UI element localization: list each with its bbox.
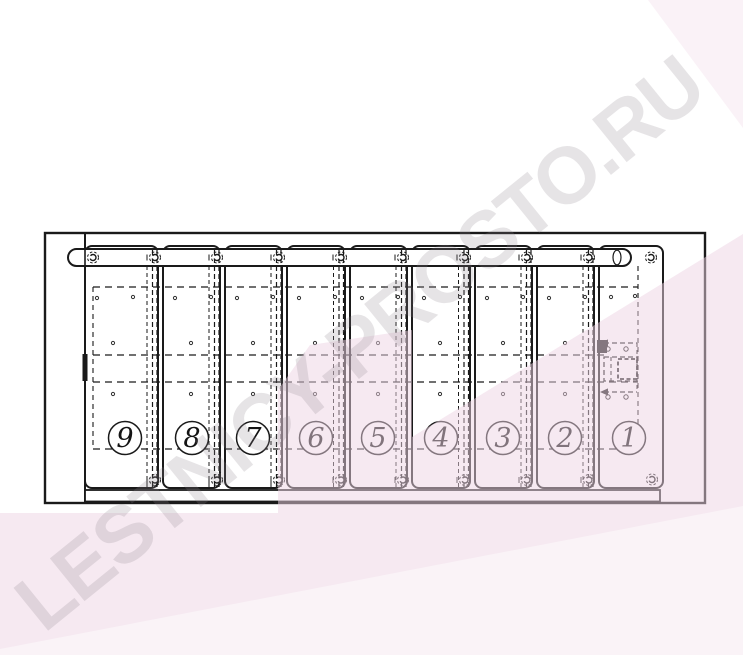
drawing-canvas: 987654321 LESTNICY-PROSTO.RU [0,0,743,655]
position-number: 9 [116,423,133,454]
rivet-inner-circle [152,255,158,261]
rivet-inner-circle [648,255,654,261]
rivet-inner-circle [276,255,282,261]
rivet-inner-circle [214,255,220,261]
rivet-inner-circle [90,255,96,261]
stair-assembly-drawing: 987654321 LESTNICY-PROSTO.RU [0,0,743,655]
rivet-inner-circle [338,255,344,261]
position-balloon: 9 [109,422,142,455]
rivet-inner-circle [586,255,592,261]
